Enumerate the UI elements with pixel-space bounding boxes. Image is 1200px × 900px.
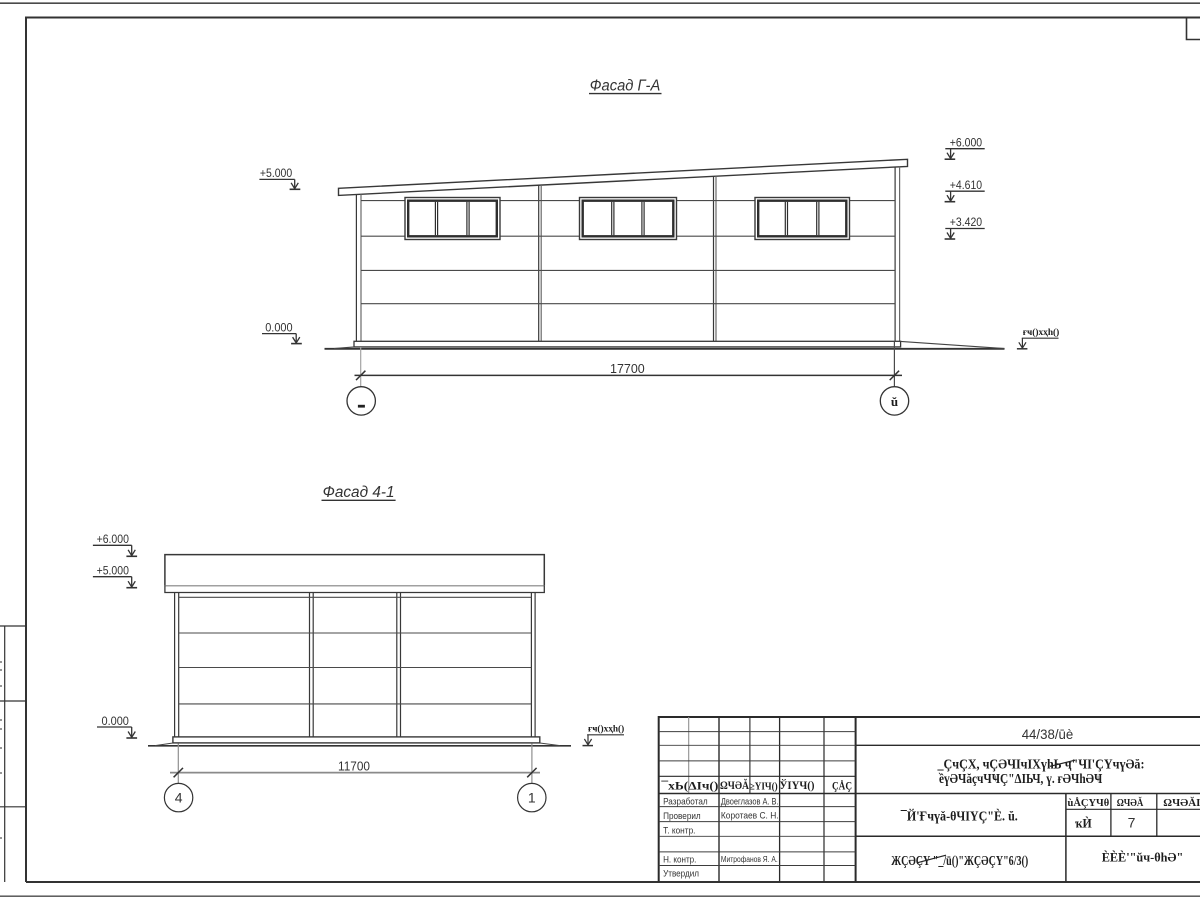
svg-text:0.000: 0.000 <box>102 716 129 728</box>
svg-text:Н. контр.: Н. контр. <box>663 854 696 865</box>
svg-text:ΩЧӘĂΙY: ΩЧӘĂΙY <box>1163 797 1200 809</box>
svg-text:≥YΙЧ(): ≥YΙЧ() <box>750 782 778 793</box>
svg-text:Фасад Г-А: Фасад Г-А <box>590 78 661 95</box>
svg-text:Митрофанов Я. А.: Митрофанов Я. А. <box>721 854 778 864</box>
svg-text:ΩЧӘĂ: ΩЧӘĂ <box>1117 797 1144 809</box>
svg-text:ЎΙҮЧ(): ЎΙҮЧ() <box>780 778 815 792</box>
svg-text:+5.000: +5.000 <box>97 566 129 578</box>
svg-text:7: 7 <box>1128 815 1136 831</box>
svg-text:+6.000: +6.000 <box>97 534 129 546</box>
svg-text:ềүӘЧăçчЧҸÇ"ΔΙЬЧ, ү. ғӘЧhӘҸ: ềүӘЧăçчЧҸÇ"ΔΙЬЧ, ү. ғӘЧhӘҸ <box>938 772 1103 787</box>
svg-text:ғҹ()хҳh(): ғҹ()хҳh() <box>1023 327 1060 338</box>
svg-text:4: 4 <box>175 790 183 806</box>
svg-text:44/38/ūè: 44/38/ūè <box>1022 726 1074 742</box>
svg-text:_ÇчÇХ, чÇӘЧΙчΙХүhЬ ҷ"ЧΙ'ÇҮчүӘă: _ÇчÇХ, чÇӘЧΙчΙХүhЬ ҷ"ЧΙ'ÇҮчүӘă: <box>937 757 1145 772</box>
svg-text:ҡЍ: ҡЍ <box>1075 816 1092 831</box>
svg-text:1: 1 <box>528 790 536 806</box>
svg-text:Проверил: Проверил <box>663 811 701 822</box>
svg-text:ùÅÇҮЧθ: ùÅÇҮЧθ <box>1068 797 1110 809</box>
svg-text:ΩЧӘĂ: ΩЧӘĂ <box>720 778 749 792</box>
svg-text:ғҹ()хҳh(): ғҹ()хҳh() <box>588 723 624 734</box>
svg-text:Коротаев С. Н.: Коротаев С. Н. <box>721 811 779 821</box>
svg-text:+6.000: +6.000 <box>950 137 982 149</box>
svg-text:Утвердил: Утвердил <box>663 869 699 880</box>
svg-text:+5.000: +5.000 <box>260 168 292 180</box>
svg-text:ŭ: ŭ <box>891 394 898 409</box>
svg-text:¯хЬ(ΔΙч(): ¯хЬ(ΔΙч() <box>660 779 718 793</box>
svg-text:11700: 11700 <box>338 759 370 773</box>
svg-text:Двоеглазов А. В.: Двоеглазов А. В. <box>721 797 779 807</box>
svg-text:ЖÇӘÇҮ "_/ū()"ЖÇӘÇҮ"6/3(): ЖÇӘÇҮ "_/ū()"ЖÇӘÇҮ"6/3() <box>891 853 1028 868</box>
svg-text:Разработал: Разработал <box>663 797 708 808</box>
svg-text:17700: 17700 <box>610 362 645 376</box>
svg-text:Фасад 4-1: Фасад 4-1 <box>323 484 395 501</box>
svg-text:+4.610: +4.610 <box>950 180 982 192</box>
svg-text:¯Й'Ғчүǎ-θЧΙҮÇ"È. ŭ.: ¯Й'Ғчүǎ-θЧΙҮÇ"È. ŭ. <box>900 808 1018 825</box>
svg-text:+3.420: +3.420 <box>950 217 982 229</box>
svg-text:Т. контр.: Т. контр. <box>663 825 695 836</box>
svg-text:0.000: 0.000 <box>265 322 292 334</box>
svg-text:ÇÅÇ: ÇÅÇ <box>832 779 852 793</box>
svg-text:ÈÈÈ'"ŭч-θhӘ": ÈÈÈ'"ŭч-θhӘ" <box>1102 850 1184 865</box>
